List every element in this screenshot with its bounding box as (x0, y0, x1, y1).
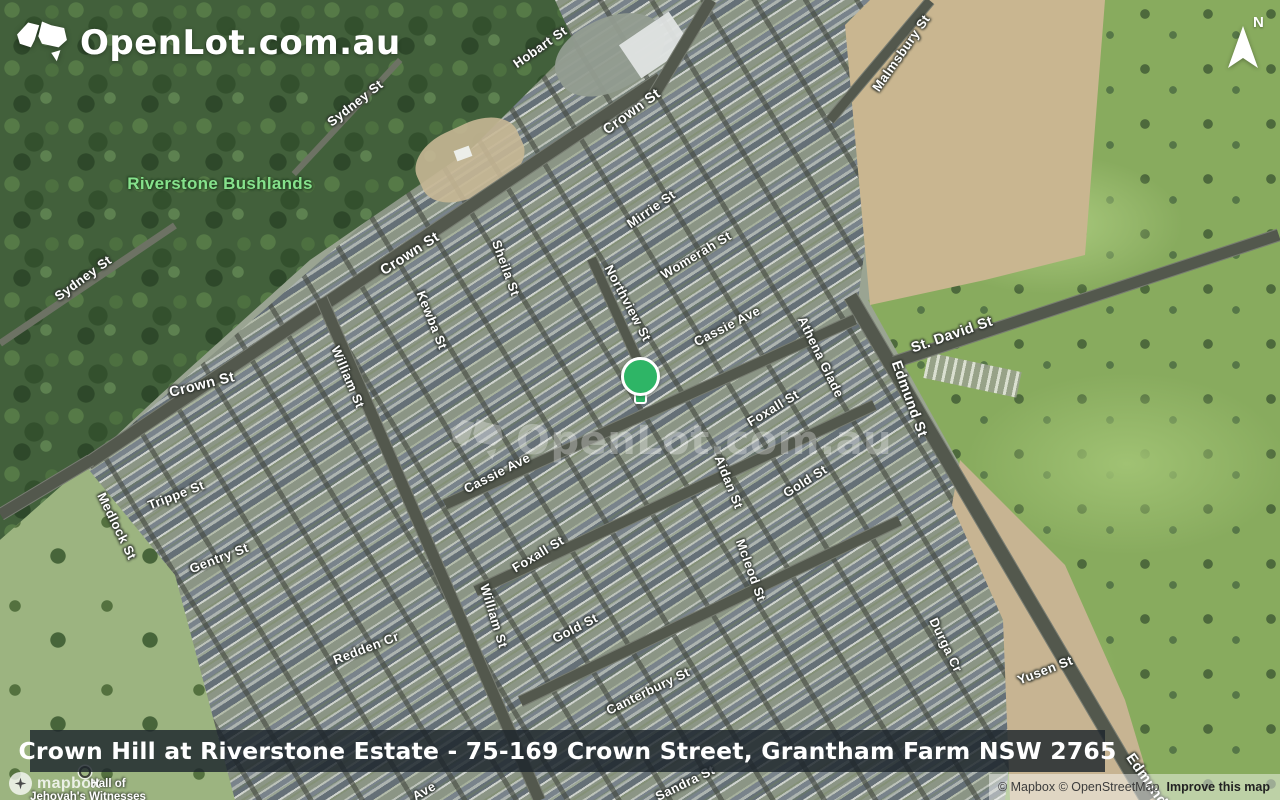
logo-text: OpenLot.com.au (80, 23, 401, 63)
north-arrow-icon: N (1226, 14, 1274, 70)
map-canvas[interactable]: Hobart St Crown St Malmsbury St Sydney S… (0, 0, 1280, 800)
address-banner-text: Crown Hill at Riverstone Estate - 75-169… (18, 737, 1116, 765)
area-label-riverstone-bushlands: Riverstone Bushlands (127, 174, 313, 194)
mapbox-logo[interactable]: mapbox (9, 772, 101, 795)
map-attribution: © Mapbox © OpenStreetMap Improve this ma… (989, 774, 1280, 800)
mapbox-wordmark: mapbox (37, 775, 101, 793)
openlot-logo[interactable]: OpenLot.com.au (14, 16, 401, 69)
improve-this-map-link[interactable]: Improve this map (1167, 780, 1271, 794)
location-marker[interactable] (621, 357, 660, 396)
address-banner: Crown Hill at Riverstone Estate - 75-169… (30, 730, 1105, 772)
australia-logo-icon (14, 16, 70, 69)
attribution-copyrights[interactable]: © Mapbox © OpenStreetMap (998, 780, 1160, 794)
mapbox-logo-icon (9, 772, 32, 795)
